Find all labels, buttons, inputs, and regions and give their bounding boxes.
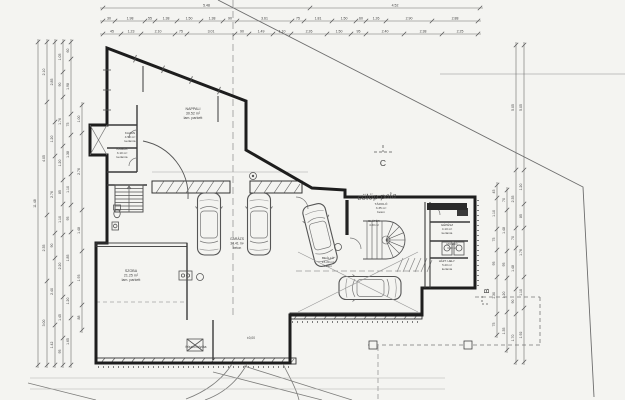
dim-value: 1.81 (315, 16, 322, 20)
section-marker-c: C (380, 158, 386, 168)
dim-value: 1.00 (77, 116, 81, 123)
dim-value: 1.20 (58, 160, 62, 167)
dim-value: 70 (511, 236, 515, 240)
dim-value: 95 (357, 29, 361, 33)
dim-chain-top-overall: 5.484.52 (100, 3, 483, 10)
dim-value: 4.05 (42, 155, 46, 162)
canopy-post (369, 341, 377, 349)
dim-value: 2.10 (155, 29, 162, 33)
room-label-garazs: GARÁZS34.41 m²beton (230, 237, 245, 250)
dim-chain-left-5: 601.98751.381.10951.851.201.65 (66, 39, 73, 368)
dim-value: 3.01 (208, 29, 215, 33)
dim-value: 1.05 (58, 54, 62, 61)
dim-value: 5.48 (203, 3, 210, 7)
dim-value: 75 (492, 238, 496, 242)
fixtures (112, 173, 468, 281)
dim-value: 2.26 (306, 29, 313, 33)
dim-value: 75 (492, 323, 496, 327)
room-label-haztartasi: HÁZT. HELY.5.20 m²kerámia (439, 259, 456, 271)
room-label-beallo: BEÁLLÓ15.20 m²beton (322, 255, 335, 268)
dim-value: 3.61 (261, 16, 268, 20)
dim-value: 45 (492, 190, 496, 194)
curved-wall-arc (143, 141, 188, 199)
dim-chain-left-4: 1.05901.761.20851.102.201.4595 (58, 39, 65, 368)
dim-chain-left-2: 2.104.052.353.00 (42, 39, 49, 368)
dim-value: 2.88 (452, 16, 459, 20)
column-marker (335, 244, 342, 251)
dim-value: 75 (179, 29, 183, 33)
dim-value: 1.38 (163, 16, 170, 20)
dim-value: 95 (502, 263, 506, 267)
dim-value: 1.30 (492, 292, 496, 299)
dim-value: 95 (66, 217, 70, 221)
dim-value: 1.10 (492, 210, 496, 217)
dim-value: 1.35 (502, 328, 506, 335)
dim-value: 1.20 (50, 136, 54, 143)
dim-chain-left-6: 1.002.761.481.9388 (77, 102, 84, 333)
dim-value: 70 (502, 198, 506, 202)
drain-label: felszíni folyóka (186, 345, 207, 349)
dim-value: 1.10 (66, 186, 70, 193)
dim-value: 1.38 (66, 151, 70, 158)
dim-value: 2.38 (420, 29, 427, 33)
dim-value: 1.92 (519, 332, 523, 339)
door-arcs (129, 130, 440, 249)
room-label-tarolo: TÁROLÓ3.35 m²beton (375, 201, 388, 214)
dim-value: 1.70 (511, 335, 515, 342)
dim-value: 1.50 (186, 16, 193, 20)
dim-value: 1.85 (66, 255, 70, 262)
canopy-post (464, 341, 472, 349)
dim-value: 2.20 (58, 263, 62, 270)
dim-chain-right-inner-2: 451.1075951.3075 (492, 182, 499, 338)
dim-value: 2.10 (42, 69, 46, 76)
floor-plan-canvas: 5.484.52301.98551.381.501.38903.61751.81… (0, 0, 625, 400)
window-ticks (98, 55, 478, 367)
room-label-szoba: SZOBA21.25 m²lam. parkett (122, 269, 141, 282)
dim-value: 2.40 (50, 288, 54, 295)
dim-chain-left-3: 2.851.202.76902.401.42 (50, 39, 57, 368)
dim-value: 85 (58, 190, 62, 194)
level-marker-label: ±0,00 (247, 336, 255, 340)
dim-value: 90 (240, 29, 244, 33)
dim-value: 30 (107, 16, 111, 20)
dim-value: 1.50 (336, 29, 343, 33)
dim-value: 55 (148, 16, 152, 20)
dim-value: 1.48 (511, 265, 515, 272)
dim-chain-right-outer-1: 5.052.35701.48901.70 (511, 42, 518, 365)
dim-value: 1.20 (502, 292, 506, 299)
dim-value: 2.25 (457, 29, 464, 33)
dim-value: 95 (492, 262, 496, 266)
dim-value: 11.48 (33, 199, 37, 208)
dim-value: 4.52 (392, 3, 399, 7)
dim-value: 90 (58, 83, 62, 87)
dim-value: 1.50 (341, 16, 348, 20)
column-marker (197, 274, 204, 281)
dim-value: 2.35 (42, 245, 46, 252)
dim-value: 85 (519, 214, 523, 218)
room-label-eloter: ELŐTÉR4.20 m² (368, 218, 380, 227)
stove-fixture (179, 271, 192, 280)
dim-value: 88 (77, 316, 81, 320)
dim-value: 45 (110, 29, 114, 33)
dim-value: 1.65 (66, 338, 70, 345)
room-label-gepesz: GÉPÉSZ4.10 m²kerámia (441, 222, 453, 235)
handwritten-note: cölöp pala (357, 191, 396, 202)
cars (196, 193, 402, 302)
dim-value: 90 (228, 16, 232, 20)
car-garage-left (196, 193, 223, 255)
car-angled (299, 202, 340, 269)
dim-value: 1.76 (58, 118, 62, 125)
dim-value: 3.00 (42, 320, 46, 327)
dim-chain-left-1: 11.48 (33, 39, 40, 368)
dim-value: 2.85 (50, 79, 54, 86)
dim-value: 1.10 (519, 289, 523, 296)
dim-chain-right-inner-1: 701.48951.201.35 (502, 187, 509, 353)
dim-value: 1.49 (258, 29, 265, 33)
dim-value: 1.23 (128, 29, 135, 33)
dim-value: 2.76 (77, 168, 81, 175)
wardrobe-cabinet (427, 203, 467, 210)
room-label-living: NAPPALI30.52 m²lam. parkett (184, 107, 203, 120)
dim-value: 75 (296, 16, 300, 20)
sink-fixture-left (112, 222, 119, 230)
dim-value: 60 (66, 49, 70, 53)
straight-stair (115, 185, 143, 212)
dim-chain-right-outer-2: 5.051.20851.761.101.92 (519, 42, 526, 365)
dim-value: 1.20 (66, 298, 70, 305)
dim-value: 2.90 (406, 16, 413, 20)
dim-value: 2.76 (50, 191, 54, 198)
driveway-curves (28, 364, 445, 400)
dim-value: 1.45 (58, 314, 62, 321)
room-label-kamra: KAMRA3.10 m²kerámia (116, 147, 128, 159)
section-marker-dashes (374, 145, 489, 304)
dim-value: 90 (50, 244, 54, 248)
dim-value: 1.48 (502, 227, 506, 234)
section-marker-b: B (482, 288, 491, 293)
dim-value: 60 (359, 16, 363, 20)
dim-value: 1.76 (519, 249, 523, 256)
dim-value: 1.10 (279, 29, 286, 33)
dim-value: 1.98 (66, 83, 70, 90)
dim-value: 1.20 (519, 184, 523, 191)
dim-value: 5.05 (511, 104, 515, 111)
dim-value: 1.42 (50, 342, 54, 349)
dim-value: 1.98 (127, 16, 134, 20)
floor-plan-drawing: 5.484.52301.98551.381.501.38903.61751.81… (0, 0, 625, 400)
dim-value: 1.48 (77, 227, 81, 234)
room-label-kazan: KAZÁN4.50 m²kerámia (124, 131, 135, 143)
dim-value: 1.38 (209, 16, 216, 20)
dim-chain-top-row-3: 451.232.10753.01901.491.102.261.50952.40… (100, 29, 481, 36)
dim-value: 75 (66, 123, 70, 127)
garage-front-wall-hatch (152, 181, 302, 193)
dim-chain-top-row-2: 301.98551.381.501.38903.61751.811.50601.… (100, 16, 481, 23)
dim-value: 1.93 (77, 275, 81, 282)
dim-value: 5.05 (519, 104, 523, 111)
room-label-mosdo: MOSDÓ3.60 m² (447, 241, 459, 250)
dim-value: 2.40 (382, 29, 389, 33)
dim-value: 2.35 (511, 196, 515, 203)
dim-value: 95 (58, 350, 62, 354)
building-outline (90, 48, 475, 363)
dim-value: 90 (511, 300, 515, 304)
dim-value: 1.10 (58, 216, 62, 223)
dim-value: 1.26 (373, 16, 380, 20)
car-garage-right (246, 193, 273, 255)
